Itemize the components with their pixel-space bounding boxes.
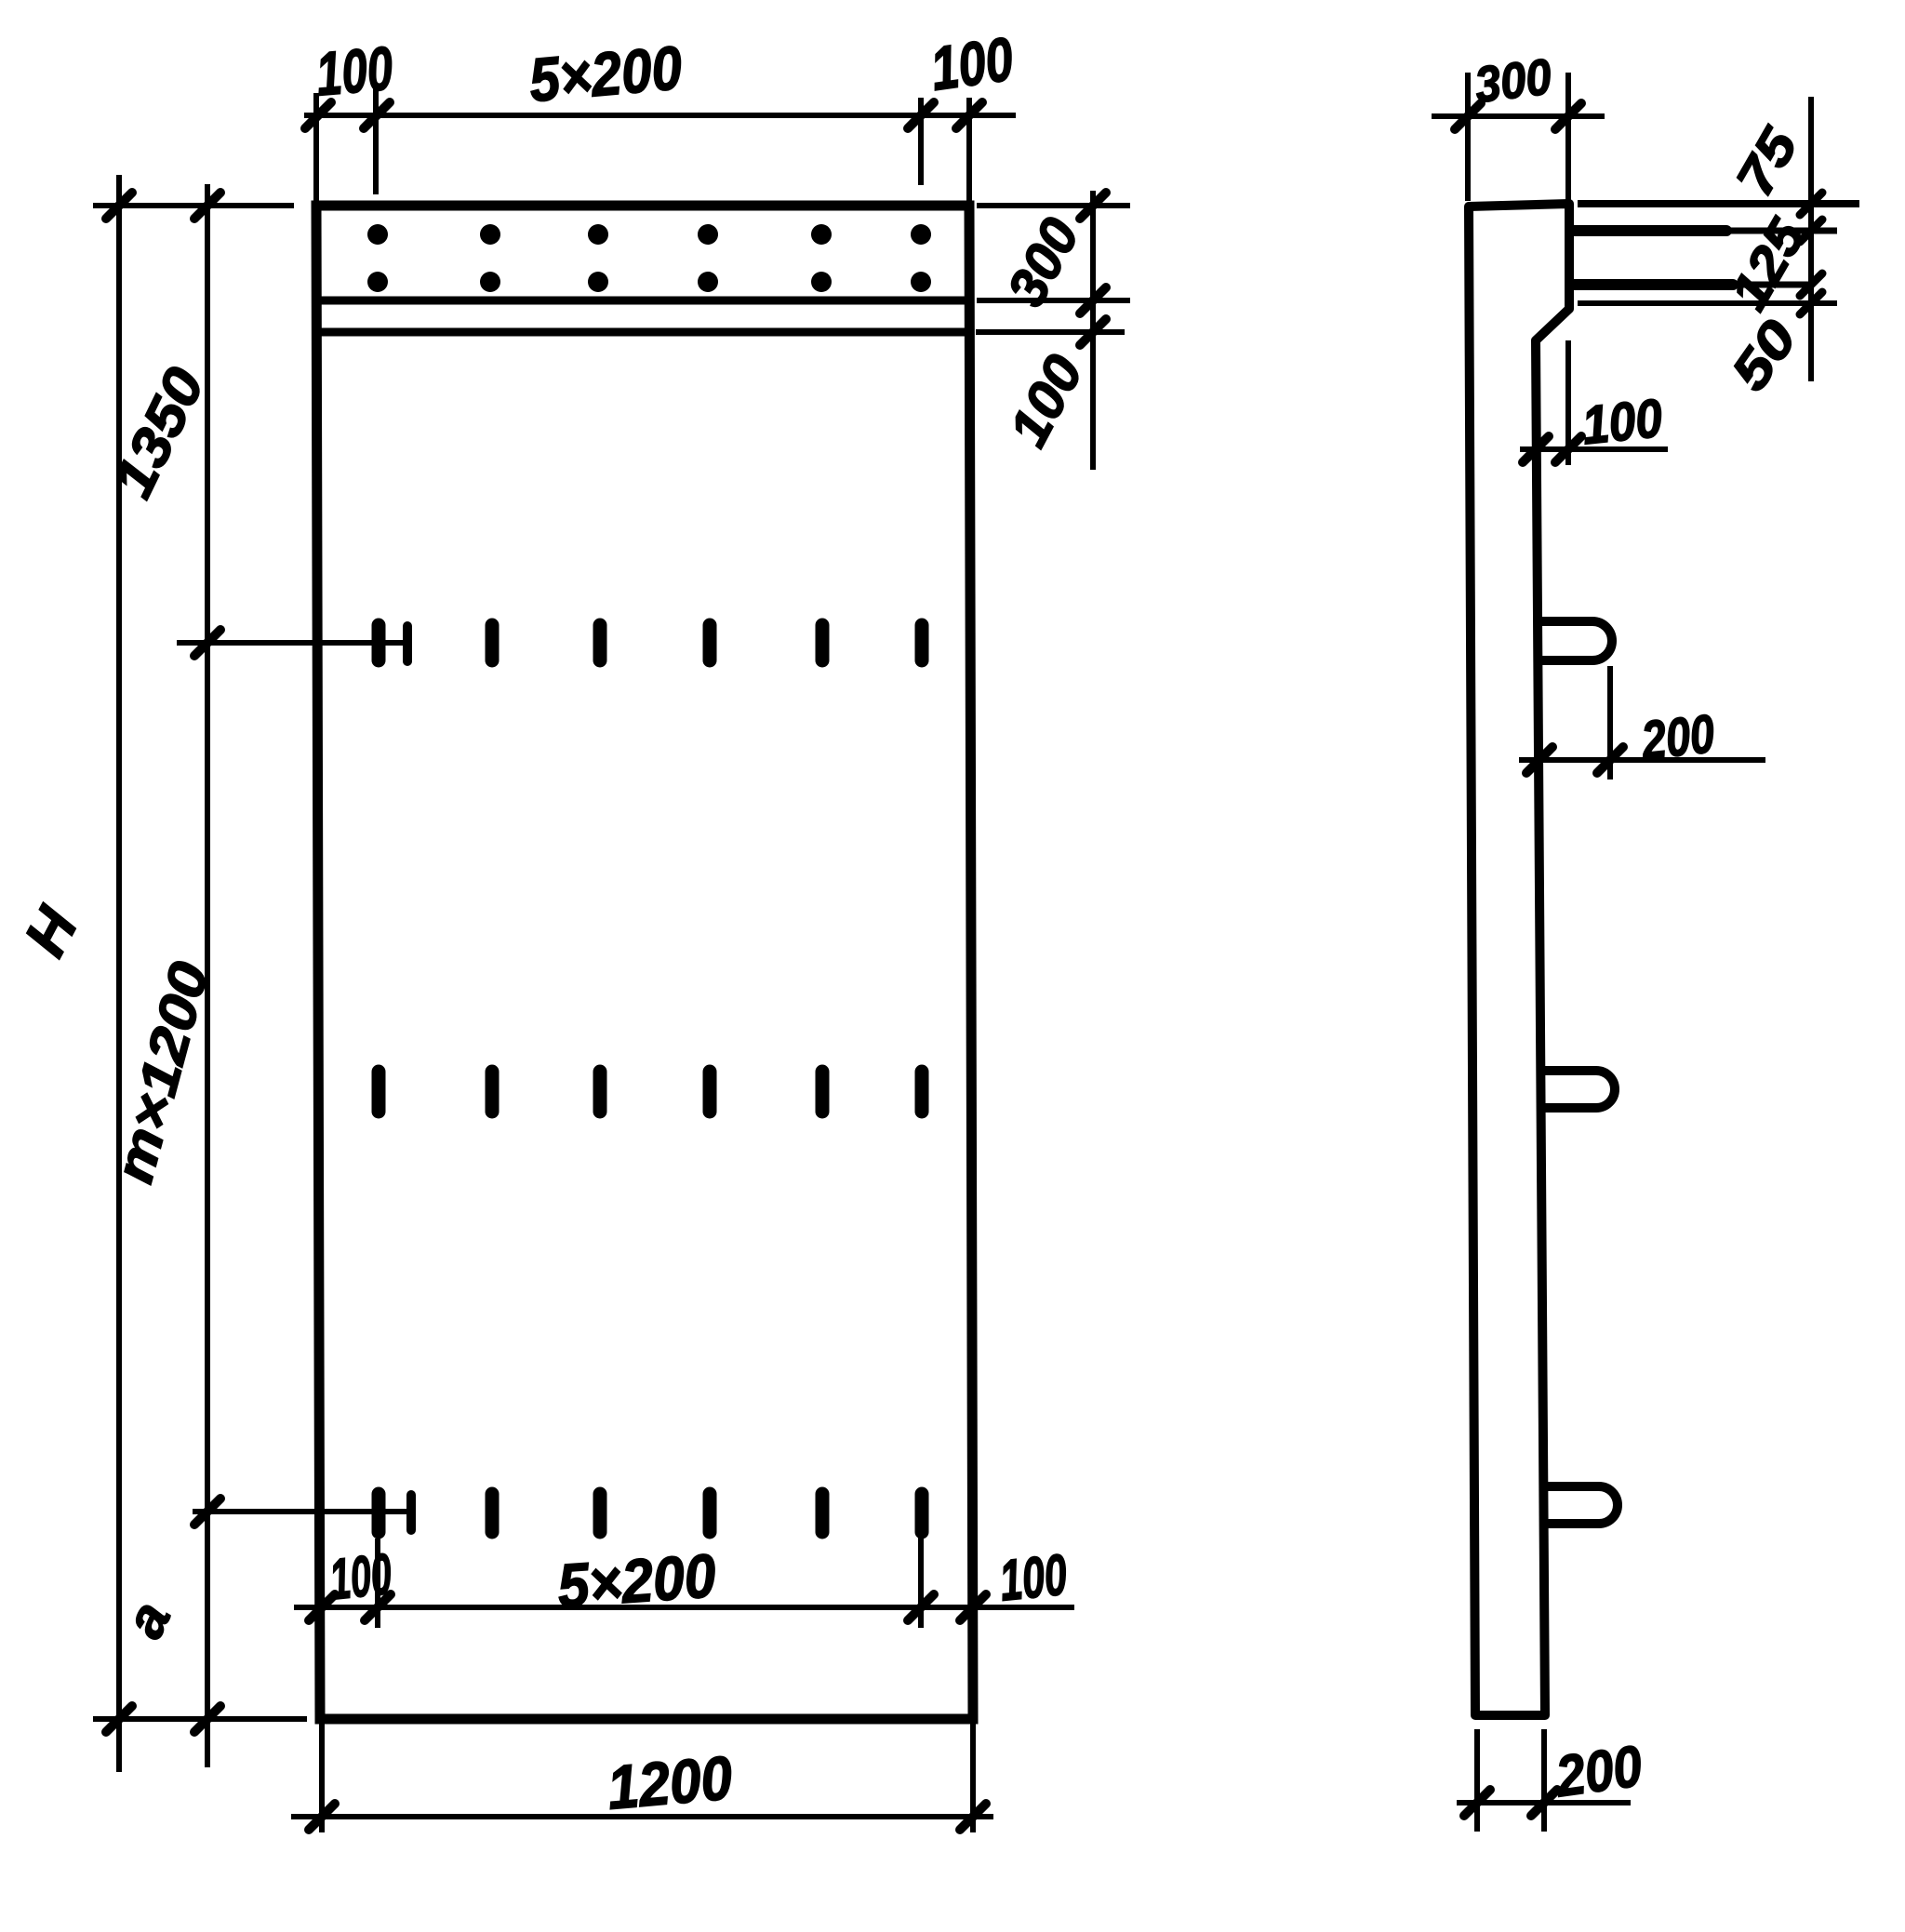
- svg-text:1200: 1200: [605, 1742, 735, 1821]
- svg-text:300: 300: [1472, 48, 1554, 113]
- svg-text:100: 100: [926, 23, 1018, 103]
- svg-text:100: 100: [326, 1542, 394, 1613]
- svg-text:200: 200: [1552, 1734, 1646, 1809]
- svg-text:100: 100: [1579, 388, 1665, 457]
- svg-text:5×200: 5×200: [526, 33, 685, 114]
- svg-text:200: 200: [1638, 703, 1717, 771]
- svg-text:100: 100: [996, 1543, 1070, 1614]
- svg-text:100: 100: [313, 33, 395, 109]
- svg-text:5×200: 5×200: [555, 1540, 718, 1620]
